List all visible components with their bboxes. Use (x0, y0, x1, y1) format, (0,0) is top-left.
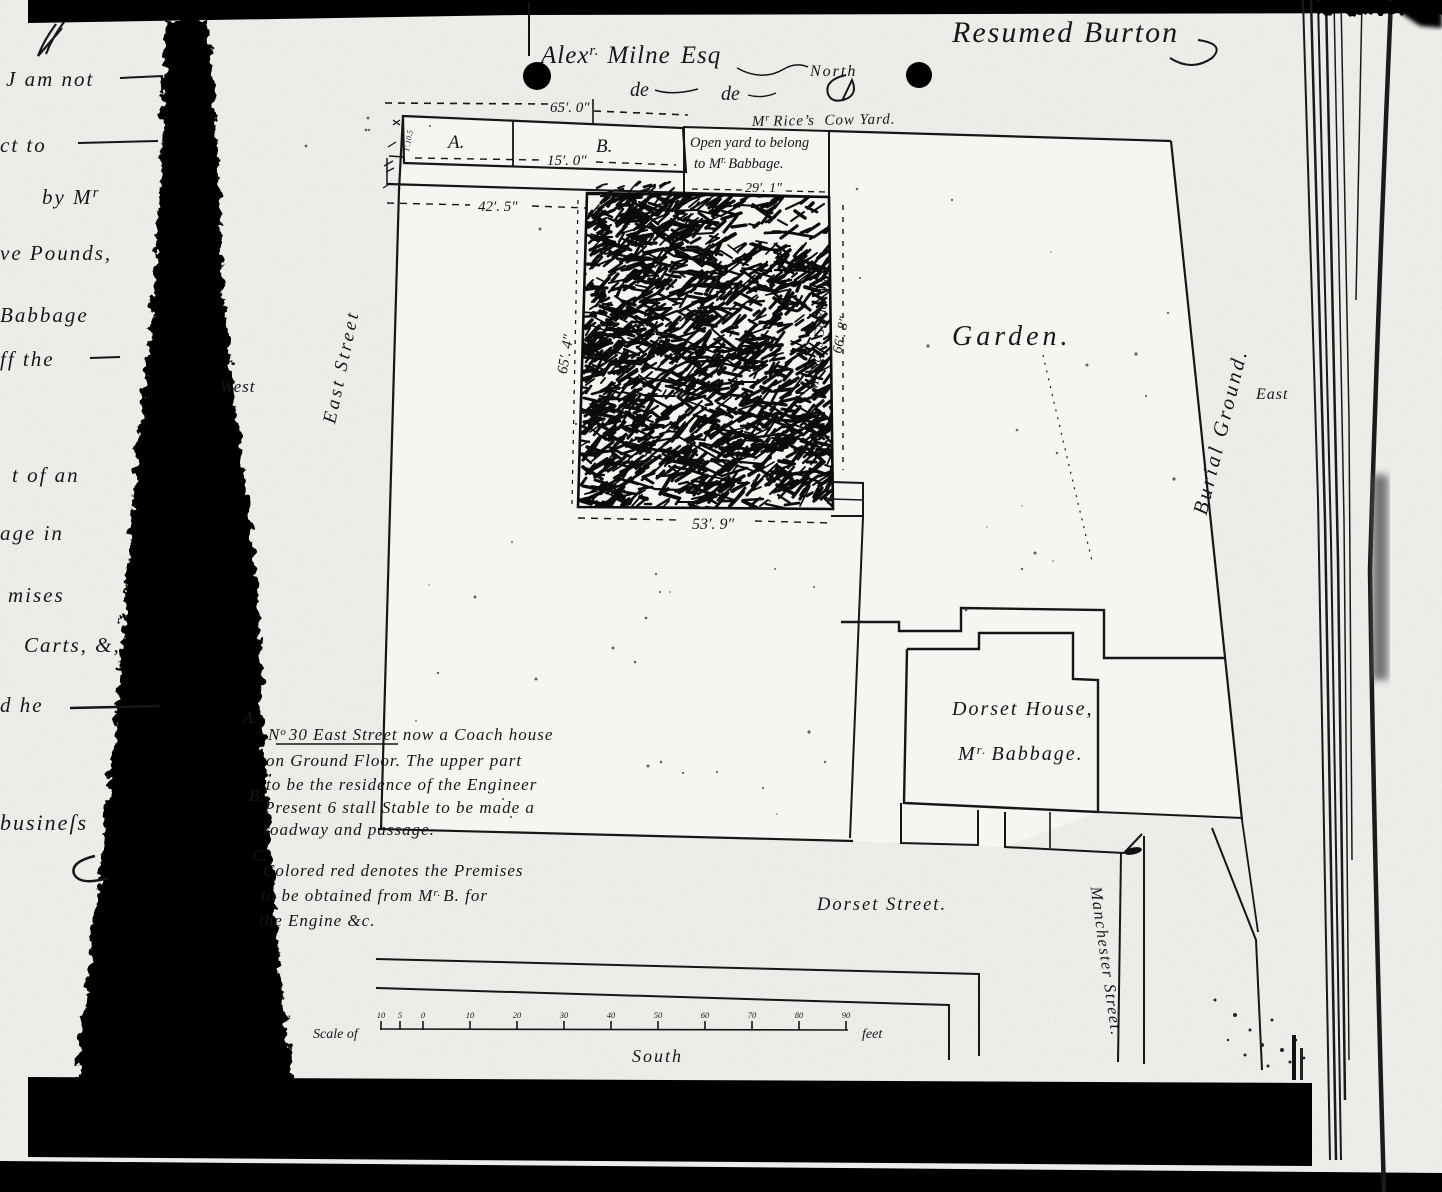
svg-text:20: 20 (513, 1010, 522, 1020)
svg-text:Babbage: Babbage (0, 303, 89, 327)
svg-text:feet: feet (862, 1027, 883, 1042)
svg-text:50: 50 (654, 1010, 663, 1020)
svg-text:B.: B. (249, 786, 264, 805)
svg-text:North: North (809, 63, 857, 80)
svg-text:B.: B. (596, 136, 612, 157)
svg-text:15′. 0″: 15′. 0″ (547, 153, 587, 169)
svg-text:by Mr: by Mr (42, 185, 100, 209)
svg-text:age in: age in (0, 521, 64, 545)
svg-text:roadway and passage.: roadway and passage. (263, 820, 435, 839)
svg-text:Dorset House,: Dorset House, (951, 698, 1094, 720)
svg-text:80: 80 (795, 1010, 804, 1020)
svg-text:A.: A. (446, 132, 464, 153)
svg-text:Garden.: Garden. (952, 321, 1072, 352)
svg-text:mises: mises (8, 583, 65, 607)
svg-text:de: de (630, 79, 649, 101)
svg-text:Present 6 stall Stable to be m: Present 6 stall Stable to be made a (263, 798, 535, 817)
svg-text:the Engine &c.: the Engine &c. (259, 911, 375, 930)
svg-text:10: 10 (466, 1010, 475, 1020)
svg-text:70: 70 (748, 1010, 757, 1020)
svg-text:90: 90 (842, 1010, 851, 1020)
svg-text:d he: d he (0, 693, 44, 717)
svg-text:to be obtained from Mr.B. for: to be obtained from Mr.B. for (261, 886, 488, 905)
svg-text:A.: A. (242, 708, 258, 727)
svg-text:Colored red denotes the Premis: Colored red denotes the Premises (263, 861, 524, 880)
svg-text:40: 40 (607, 1010, 616, 1020)
svg-text:on Ground Floor. The upper p: on Ground Floor. The upper part (266, 751, 522, 770)
svg-text:29′. 1″: 29′. 1″ (745, 181, 782, 196)
svg-text:ff the: ff the (0, 347, 55, 371)
svg-text:to be the residence of the Eng: to be the residence of the Engineer (266, 775, 537, 794)
svg-text:65′. 0″: 65′. 0″ (550, 100, 590, 116)
svg-text:Dorset Street.: Dorset Street. (816, 895, 947, 915)
svg-text:MrRice’s Cow Yard.: MrRice’s Cow Yard. (751, 110, 896, 130)
svg-text:10: 10 (377, 1010, 386, 1020)
svg-text:East: East (1255, 386, 1288, 403)
svg-text:t of an: t of an (12, 463, 80, 487)
svg-text:busineſs: busineſs (0, 810, 88, 835)
svg-text:ct to: ct to (0, 133, 47, 157)
svg-text:de: de (721, 83, 740, 105)
svg-text:60: 60 (701, 1010, 710, 1020)
svg-text:Scale of: Scale of (313, 1027, 360, 1042)
svg-text:30: 30 (559, 1010, 569, 1020)
svg-text:Mr.Babbage.: Mr.Babbage. (957, 742, 1084, 765)
svg-text:53′. 9″: 53′. 9″ (692, 516, 735, 533)
svg-text:42′. 5″: 42′. 5″ (478, 199, 518, 215)
svg-text:Resumed Burton: Resumed Burton (951, 16, 1179, 49)
svg-text:Carts, &,: Carts, &, (24, 633, 121, 657)
svg-text:Alexr.MilneEsq: Alexr.MilneEsq (539, 42, 721, 69)
svg-text:Open yard to belong: Open yard to belong (690, 135, 809, 151)
svg-text:ve Pounds,: ve Pounds, (0, 241, 112, 265)
svg-text:South: South (632, 1046, 683, 1066)
svg-text:West: West (220, 377, 256, 396)
svg-text:J am not: J am not (6, 67, 94, 91)
svg-text:No30 East Street now a Coach: No30 East Street now a Coach house (267, 725, 553, 744)
svg-text:5: 5 (398, 1010, 402, 1020)
svg-text:to Mr.Babbage.: to Mr.Babbage. (694, 155, 783, 172)
